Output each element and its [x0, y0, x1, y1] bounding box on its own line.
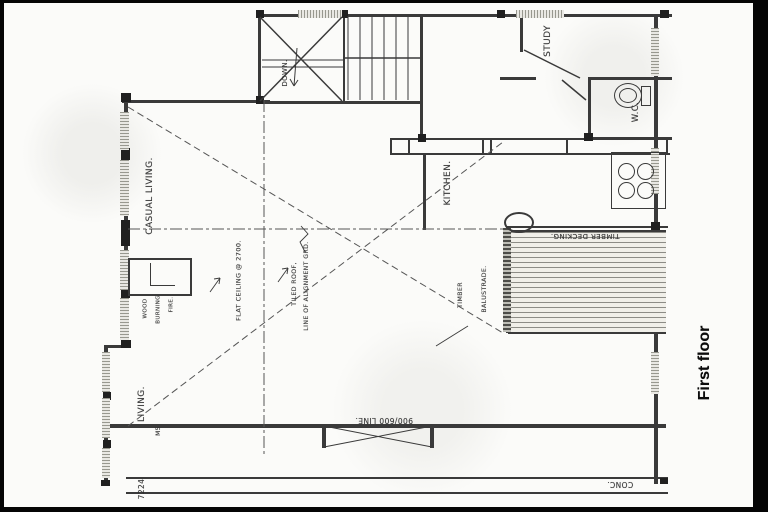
annotation-balustrade-2: BALUSTRADE.	[482, 260, 490, 318]
annotation-flat-ceiling: FLAT CEILING @ 2700.	[236, 238, 245, 324]
balustrade-leader	[436, 326, 468, 346]
scan-border-top	[0, 0, 768, 3]
annotation-arrow	[278, 268, 288, 282]
scan-border-left	[0, 0, 4, 512]
plan-linework	[0, 0, 768, 512]
floor-title: First floor	[695, 318, 715, 408]
annotation-tiled-roof-2: LINE OF ALIGNMENT GRD.	[304, 240, 312, 332]
scan-border-right	[753, 0, 768, 512]
scan-border-bottom	[0, 507, 768, 512]
room-label-living: LIVING.	[138, 376, 150, 432]
annotation-balustrade-1: TIMBER	[458, 278, 466, 312]
annotation-tiled-roof-1: TILED ROOF,	[292, 254, 300, 314]
room-label-kitchen: KITCHEN.	[444, 151, 456, 215]
annotation-decking: TIMBER DECKING.	[520, 230, 650, 239]
dimension-7224: 7224	[138, 474, 148, 504]
annotation-fireplace-1: WOOD	[144, 292, 151, 326]
room-label-casual-living: CASUAL LIVING.	[146, 146, 158, 246]
ceiling-rake-line	[128, 107, 503, 333]
annotation-fireplace-3: FIRE.	[170, 292, 177, 318]
room-label-study: STUDY	[544, 19, 556, 63]
annotation-arrow	[210, 278, 220, 292]
floor-plan-scan: CASUAL LIVING. LIVING. KITCHEN. STUDY W.…	[0, 0, 768, 512]
window-code-label: M5	[156, 421, 164, 441]
wc-door-leaf	[562, 80, 586, 100]
annotation-fireplace-2: BURNING	[157, 290, 164, 330]
annotation-concrete: CONC.	[600, 478, 640, 488]
stairs-down-label: DOWN.	[282, 53, 292, 93]
annotation-door-opening: 900/600 LINE.	[336, 414, 432, 424]
room-label-wc: W.C.	[632, 94, 644, 130]
